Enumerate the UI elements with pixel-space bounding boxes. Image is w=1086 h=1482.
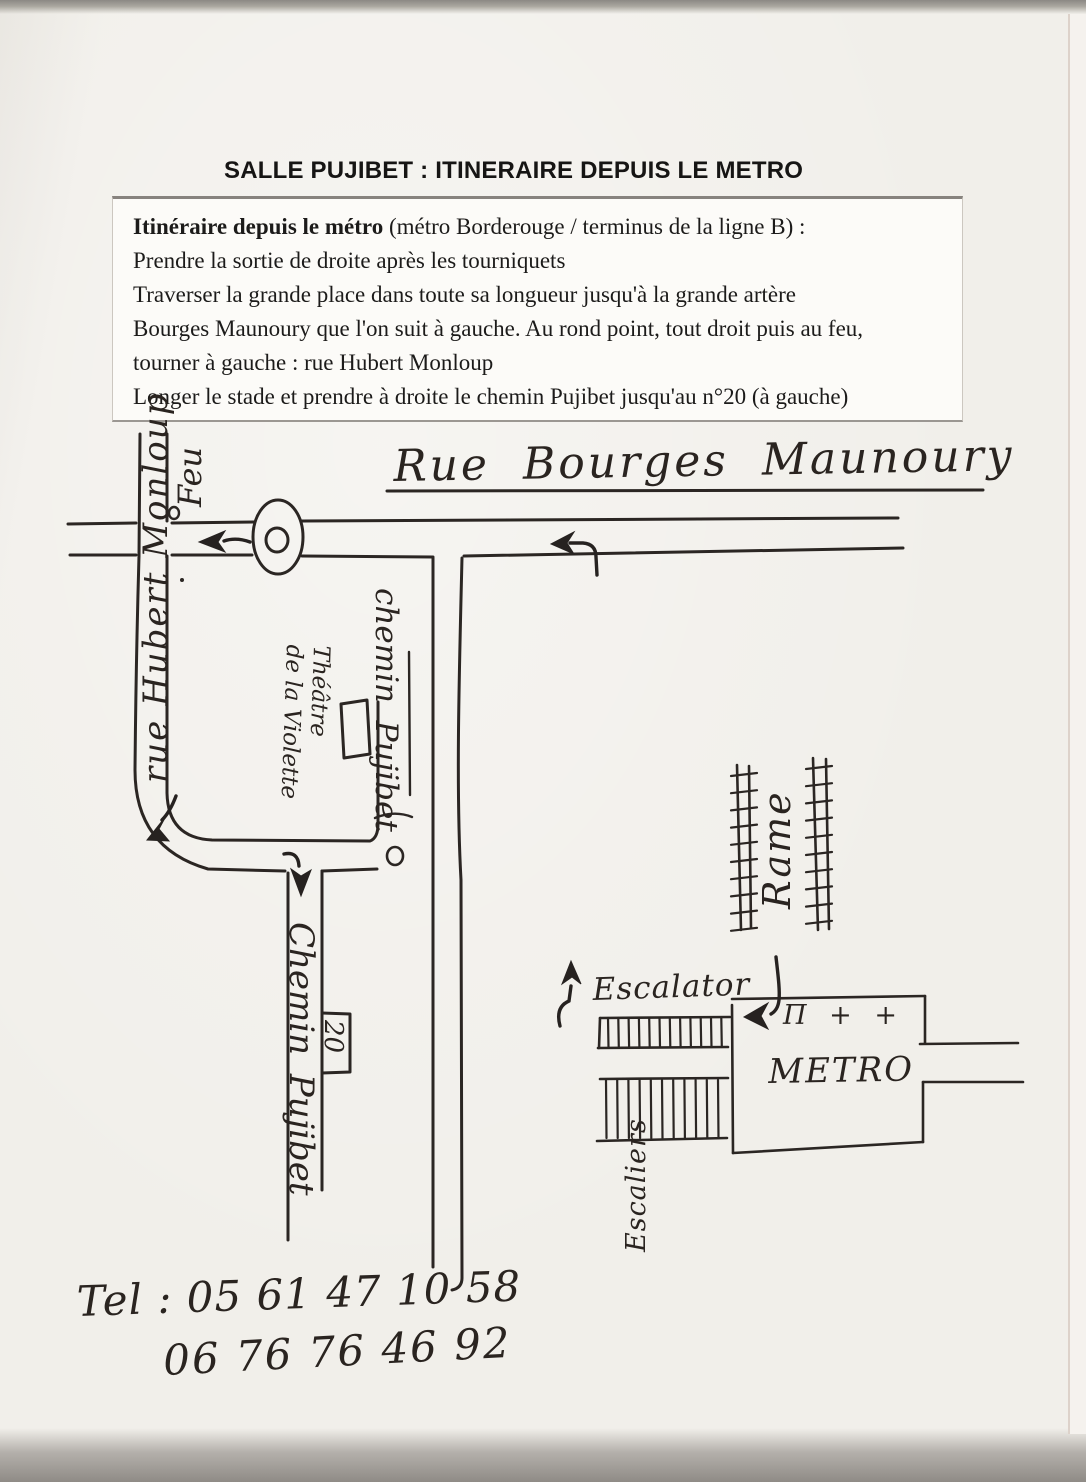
street-label-chemin-pujibet-upper: chemin Pujibet: [368, 588, 404, 832]
map-street-strokes: [68, 434, 983, 1290]
rame-track-ticks: [731, 773, 757, 931]
arrow-head-left: [744, 1003, 768, 1029]
scanner-edge-right: [1068, 14, 1086, 1434]
instruction-line: Bourges Maunoury que l'on suit à gauche.…: [133, 312, 954, 346]
scanned-document-page: SALLE PUJIBET : ITINERAIRE DEPUIS LE MET…: [0, 0, 1086, 1482]
metro-building-wall: [732, 1005, 733, 1153]
scanner-edge-top: [0, 0, 1086, 14]
arrow-head-left: [199, 531, 225, 552]
instruction-line: Prendre la sortie de droite après les to…: [133, 244, 954, 278]
document-title: SALLE PUJIBET : ITINERAIRE DEPUIS LE MET…: [224, 157, 864, 185]
street-label-chemin-pujibet-lower: Chemin Pujibet: [281, 922, 321, 1196]
theatre-building-outline: [341, 700, 370, 758]
metro-label: METRO: [768, 1049, 914, 1092]
instructions-intro-bold: Itinéraire depuis le métro: [133, 214, 383, 239]
scanner-edge-bottom: [0, 1428, 1086, 1482]
house-number-label: 20: [318, 1020, 348, 1053]
itinerary-instructions-box: Itinéraire depuis le métro (métro Border…: [112, 196, 963, 422]
arrow-head-up: [562, 961, 581, 984]
metro-turnstile-symbols: Π + +: [783, 1000, 901, 1031]
theatre-label-line2: de la Violette: [275, 644, 307, 799]
traffic-light-label: Feu: [171, 447, 209, 507]
map-circle-marker: [387, 847, 403, 865]
instructions-intro-line: Itinéraire depuis le métro (métro Border…: [133, 210, 954, 244]
label-underline: [409, 652, 410, 795]
street-label-bourges-maunoury: Rue Bourges Maunoury: [393, 430, 1015, 492]
instruction-line: Longer le stade et prendre à droite le c…: [133, 380, 954, 414]
stairs-label: Escaliers: [621, 1118, 652, 1252]
instruction-line: Traverser la grande place dans toute sa …: [133, 278, 954, 312]
theatre-label: Théâtre de la Violette: [275, 644, 334, 800]
arrow-head-down: [291, 869, 311, 896]
route-arrows: [147, 531, 779, 1029]
rame-label: Rame: [755, 790, 799, 909]
instruction-line: tourner à gauche : rue Hubert Monloup: [133, 346, 954, 380]
metro-structure-strokes: [597, 758, 1023, 1153]
escalator-label: Escalator: [592, 966, 751, 1007]
roundabout-outline: [253, 500, 303, 574]
theatre-label-line1: Théâtre: [302, 645, 334, 800]
instructions-intro-rest: (métro Borderouge / terminus de la ligne…: [383, 214, 805, 239]
street-label-hubert-monloup: rue Hubert Monloup: [136, 392, 176, 783]
escalator-hatch: [608, 1018, 722, 1047]
roundabout-center: [266, 528, 288, 552]
